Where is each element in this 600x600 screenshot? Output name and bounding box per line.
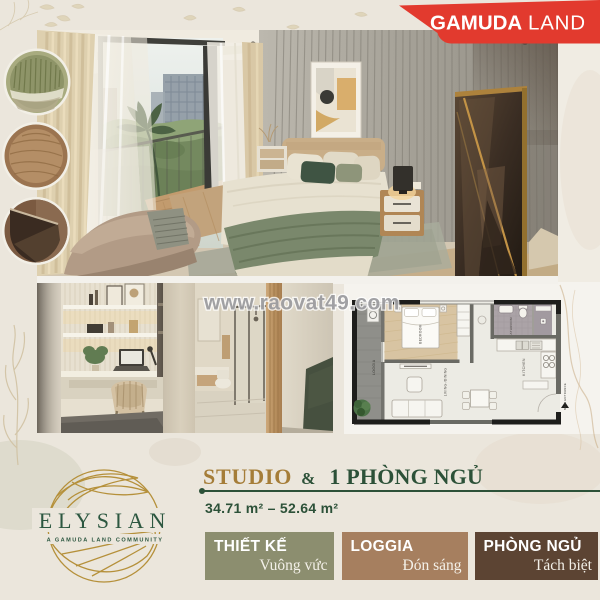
svg-text:MAIN ENTRANCE: MAIN ENTRANCE: [563, 383, 567, 410]
svg-text:A GAMUDA LAND COMMUNITY: A GAMUDA LAND COMMUNITY: [47, 538, 164, 544]
svg-text:LAND: LAND: [528, 12, 586, 35]
svg-text:BATHROOM: BATHROOM: [509, 317, 513, 337]
svg-text:LOGGIA: LOGGIA: [372, 359, 376, 375]
svg-text:LIVING-/DINING: LIVING-/DINING: [444, 368, 448, 397]
svg-text:ELYSIAN: ELYSIAN: [39, 508, 172, 533]
svg-text:KITCHEN: KITCHEN: [522, 358, 526, 376]
svg-text:BEDROOM: BEDROOM: [419, 324, 423, 344]
svg-text:www.raovat49.com: www.raovat49.com: [203, 292, 400, 315]
svg-text:GAMUDA: GAMUDA: [430, 12, 522, 35]
